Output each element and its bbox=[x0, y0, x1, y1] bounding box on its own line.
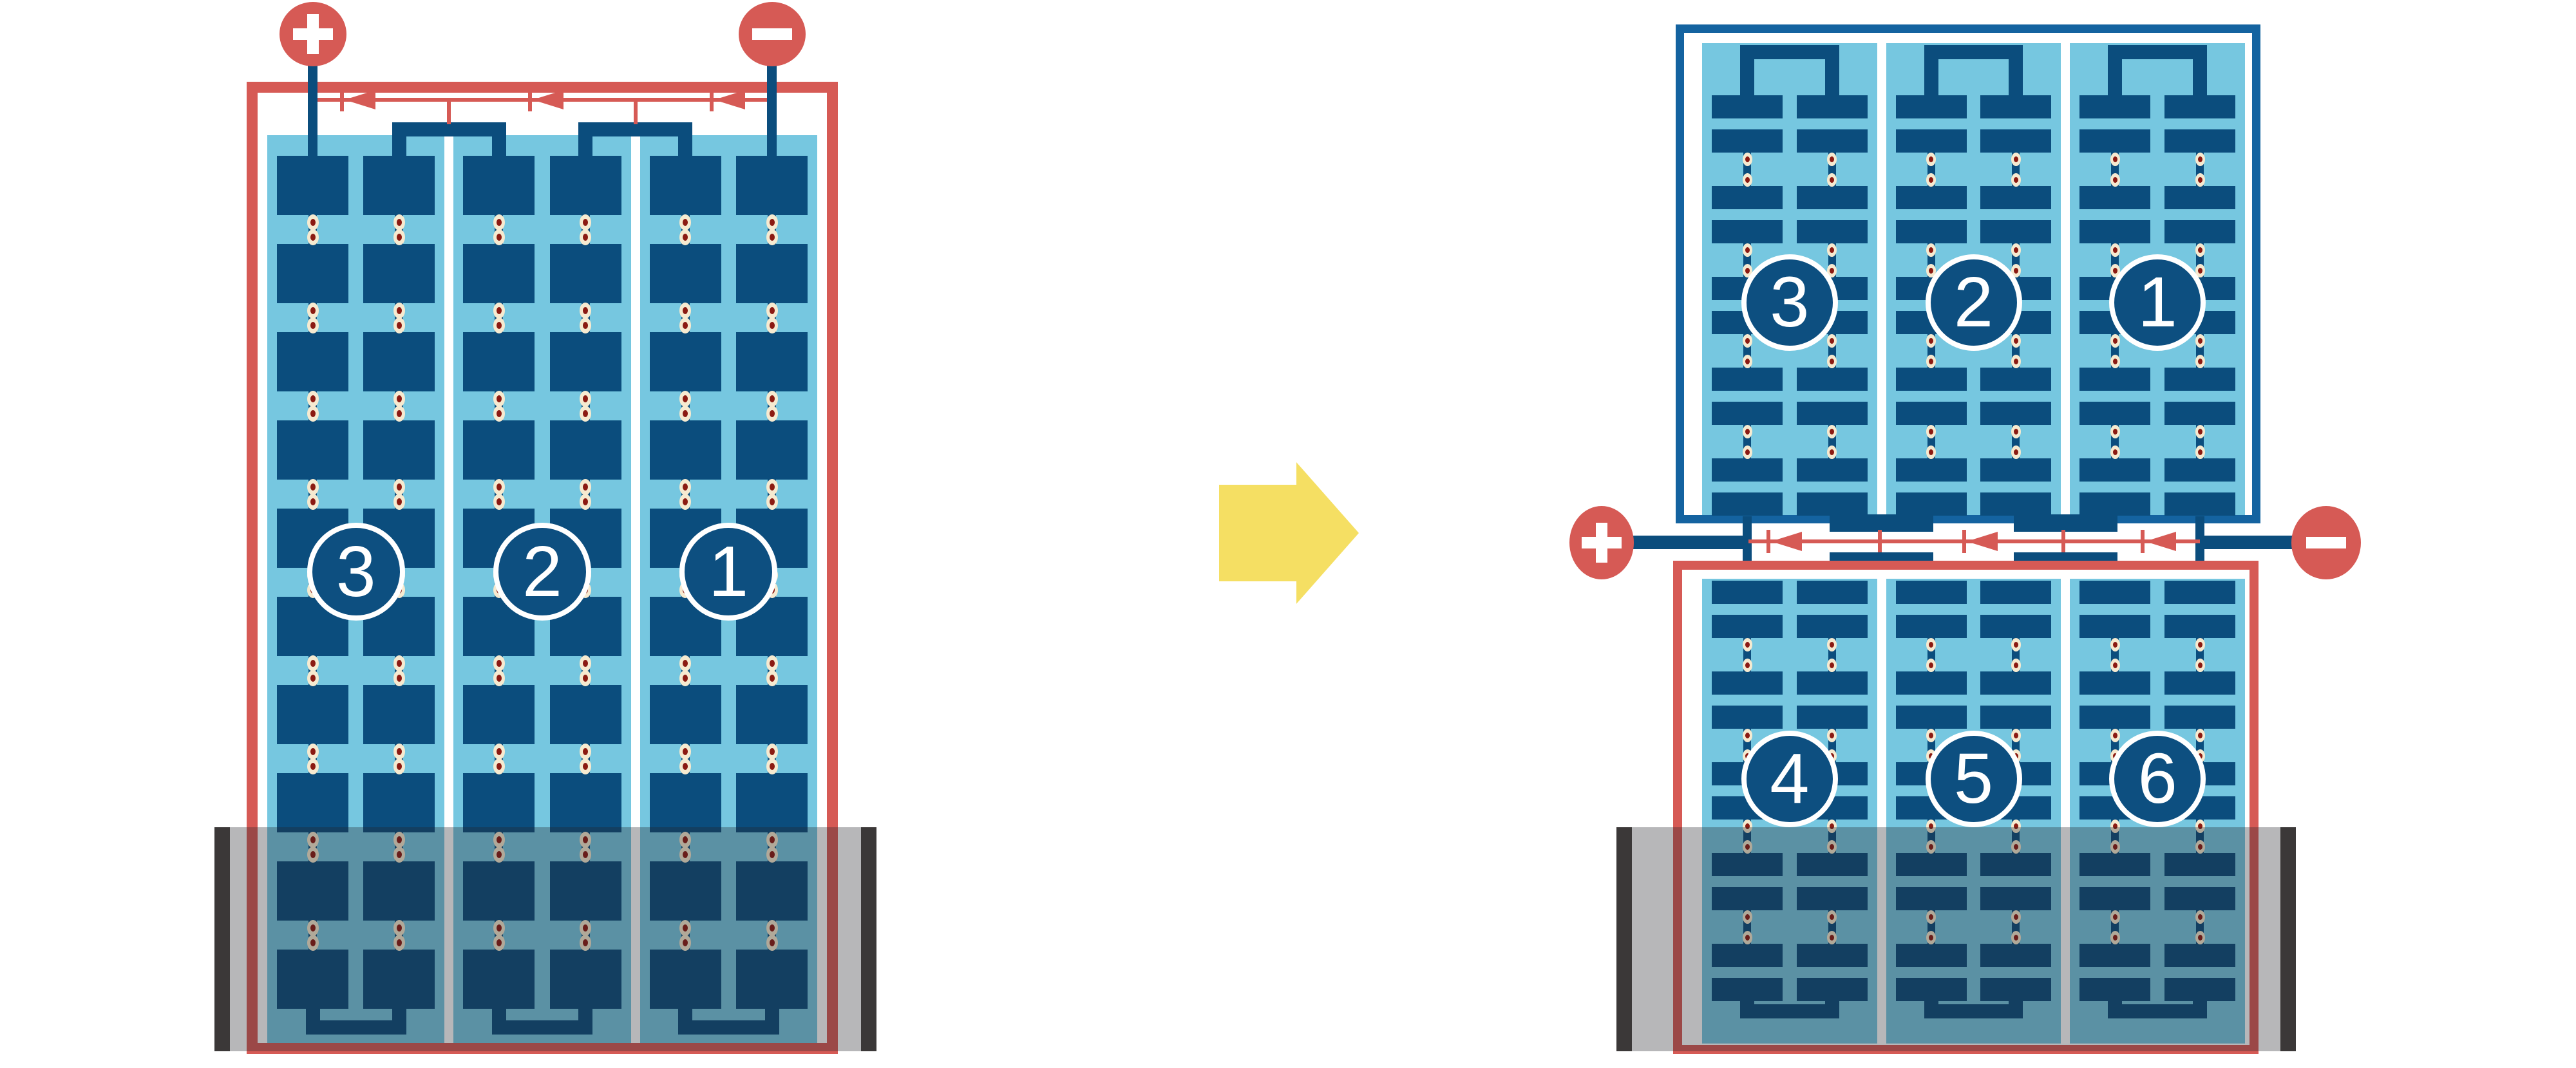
solder-dot-icon bbox=[393, 303, 405, 319]
solder-dot-core bbox=[770, 395, 775, 402]
string-u-turn-leg bbox=[2009, 59, 2023, 97]
solder-dot-core bbox=[2113, 359, 2117, 364]
cell-connector-ribbon bbox=[681, 917, 690, 953]
solder-dot-core bbox=[1929, 268, 1933, 274]
solder-dot-core bbox=[2198, 449, 2202, 455]
solder-dot-icon bbox=[2011, 425, 2021, 438]
solder-dot-icon bbox=[493, 920, 505, 936]
cell-connector-ribbon bbox=[2111, 634, 2119, 675]
solder-dot-icon bbox=[2195, 820, 2205, 833]
solder-dot-core bbox=[1830, 359, 1834, 364]
cell-connector-ribbon bbox=[681, 211, 690, 248]
pv-cell bbox=[2079, 492, 2150, 516]
pv-cell bbox=[1797, 853, 1868, 876]
cell-connector-ribbon bbox=[582, 476, 590, 512]
diode-arrow-icon bbox=[1771, 532, 1802, 551]
solder-dot-core bbox=[397, 675, 402, 682]
pv-cell bbox=[1896, 853, 1967, 876]
solder-dot-core bbox=[310, 675, 316, 682]
cell-connector-ribbon bbox=[681, 476, 690, 512]
string-number-badge: 4 bbox=[1741, 731, 1838, 827]
solder-dot-icon bbox=[1827, 910, 1837, 924]
solder-dot-core bbox=[1830, 733, 1834, 738]
solder-dot-icon bbox=[580, 567, 591, 583]
middle-junction-bus bbox=[0, 0, 2576, 1068]
solder-dot-icon bbox=[1743, 638, 1752, 651]
pv-cell bbox=[1712, 368, 1783, 391]
pv-cell bbox=[1980, 581, 2051, 604]
string-number-label: 4 bbox=[1770, 744, 1809, 814]
solder-dot-core bbox=[497, 748, 502, 755]
solder-dot-core bbox=[683, 322, 688, 329]
cell-connector-ribbon bbox=[2012, 421, 2020, 462]
solder-dot-icon bbox=[679, 920, 691, 936]
pv-cell bbox=[2164, 581, 2235, 604]
string-u-turn-bar bbox=[2108, 45, 2207, 59]
pv-cell bbox=[2164, 129, 2235, 153]
pv-cell bbox=[650, 244, 721, 303]
pv-cell bbox=[1712, 581, 1783, 604]
string-bridge-leg bbox=[492, 136, 506, 162]
solder-dot-icon bbox=[2195, 445, 2205, 459]
pv-cell bbox=[550, 509, 621, 568]
cell-connector-ribbon bbox=[2111, 421, 2119, 462]
string-separator bbox=[631, 135, 640, 1043]
cell-connector-ribbon bbox=[768, 652, 776, 689]
solder-dot-core bbox=[583, 763, 588, 770]
solder-dot-core bbox=[1830, 753, 1834, 759]
cell-connector-ribbon bbox=[2196, 816, 2204, 857]
cell-connector-ribbon bbox=[308, 740, 317, 777]
string-number-badge: 3 bbox=[1741, 254, 1838, 351]
solder-dot-icon bbox=[493, 655, 505, 671]
cell-connector-ribbon bbox=[681, 299, 690, 336]
string-u-turn-leg bbox=[678, 1009, 692, 1035]
solder-dot-core bbox=[1830, 247, 1834, 253]
pv-cell bbox=[736, 420, 808, 480]
pv-cell bbox=[463, 332, 535, 391]
solder-dot-core bbox=[683, 675, 688, 682]
solder-dot-core bbox=[497, 675, 502, 682]
solder-dot-icon bbox=[2110, 334, 2120, 348]
shade-post-icon bbox=[1616, 827, 1632, 1051]
solder-dot-core bbox=[583, 307, 588, 314]
solder-dot-icon bbox=[1743, 153, 1752, 166]
minus-icon bbox=[2291, 506, 2361, 579]
solder-dot-core bbox=[2113, 156, 2117, 162]
pv-cell bbox=[277, 861, 348, 921]
pv-cell bbox=[736, 332, 808, 391]
cell-connector-ribbon bbox=[2196, 906, 2204, 948]
pv-cell bbox=[2079, 762, 2150, 785]
string-u-turn-bar bbox=[678, 1020, 779, 1035]
pv-cell bbox=[463, 773, 535, 832]
cell-connector-ribbon bbox=[2012, 239, 2020, 281]
solder-dot-icon bbox=[1743, 264, 1752, 277]
cell-connector-ribbon bbox=[582, 917, 590, 953]
solder-dot-icon bbox=[2011, 153, 2021, 166]
solder-dot-core bbox=[1830, 156, 1834, 162]
string-u-turn-leg bbox=[1825, 59, 1839, 97]
pv-cell bbox=[550, 156, 621, 215]
solder-dot-core bbox=[583, 572, 588, 579]
solder-dot-icon bbox=[580, 670, 591, 686]
solder-dot-core bbox=[2198, 642, 2202, 648]
pv-cell bbox=[1980, 615, 2051, 638]
solder-dot-icon bbox=[1926, 173, 1936, 187]
solder-dot-icon bbox=[493, 847, 505, 863]
solder-dot-icon bbox=[1743, 840, 1752, 854]
solder-dot-core bbox=[2113, 935, 2117, 941]
solder-dot-icon bbox=[580, 479, 591, 495]
solder-dot-core bbox=[2014, 247, 2018, 253]
glyph-bar-h bbox=[2306, 537, 2346, 548]
pv-cell bbox=[1896, 492, 1967, 516]
pv-cell bbox=[650, 773, 721, 832]
pv-cell bbox=[736, 773, 808, 832]
pv-cell bbox=[2164, 402, 2235, 425]
solder-dot-core bbox=[310, 234, 316, 241]
solder-dot-core bbox=[683, 572, 688, 579]
cell-connector-ribbon bbox=[681, 652, 690, 689]
solder-dot-icon bbox=[679, 567, 691, 583]
pv-cell bbox=[1980, 762, 2051, 785]
solder-dot-core bbox=[497, 586, 502, 594]
pv-cell bbox=[1797, 129, 1868, 153]
solder-dot-icon bbox=[493, 744, 505, 760]
solder-dot-icon bbox=[580, 317, 591, 333]
string-bridge-leg bbox=[578, 136, 592, 162]
solder-dot-core bbox=[497, 939, 502, 946]
pv-cell bbox=[1896, 277, 1967, 300]
pv-cell bbox=[736, 861, 808, 921]
cell-connector-ribbon bbox=[582, 740, 590, 777]
solder-dot-core bbox=[1929, 359, 1933, 364]
solder-dot-icon bbox=[307, 567, 319, 583]
solder-dot-icon bbox=[307, 832, 319, 848]
string-u-turn-leg bbox=[492, 1009, 506, 1035]
solder-dot-icon bbox=[2195, 659, 2205, 672]
cell-connector-ribbon bbox=[395, 476, 403, 512]
solder-dot-core bbox=[2014, 662, 2018, 668]
string-number-label: 3 bbox=[336, 536, 376, 608]
pv-cell bbox=[2079, 796, 2150, 820]
pv-cell bbox=[277, 156, 348, 215]
pv-cell bbox=[1712, 458, 1783, 482]
solder-dot-core bbox=[1929, 642, 1933, 648]
solder-dot-core bbox=[397, 483, 402, 491]
solder-dot-core bbox=[1745, 642, 1750, 648]
pv-cell bbox=[2079, 581, 2150, 604]
cell-connector-ribbon bbox=[2196, 149, 2204, 190]
solder-dot-core bbox=[1745, 177, 1750, 183]
pv-cell bbox=[2164, 95, 2235, 118]
cell-connector-ribbon bbox=[2111, 725, 2119, 766]
solder-dot-icon bbox=[493, 214, 505, 230]
pv-cell bbox=[2079, 277, 2150, 300]
solder-dot-icon bbox=[1827, 931, 1837, 944]
string-u-turn-leg bbox=[2108, 59, 2122, 97]
shade-region bbox=[1616, 827, 2296, 1051]
solder-dot-core bbox=[1830, 823, 1834, 829]
pv-cell bbox=[463, 509, 535, 568]
solder-dot-core bbox=[397, 939, 402, 946]
cell-connector-ribbon bbox=[2111, 239, 2119, 281]
solder-dot-icon bbox=[393, 479, 405, 495]
diode-tick bbox=[340, 88, 344, 111]
cell-connector-ribbon bbox=[395, 388, 403, 424]
pv-cell bbox=[2164, 186, 2235, 209]
solder-dot-core bbox=[583, 851, 588, 858]
cell-connector-ribbon bbox=[308, 917, 317, 953]
pv-cell bbox=[650, 332, 721, 391]
solder-dot-core bbox=[1745, 844, 1750, 850]
transform-arrow bbox=[0, 0, 2576, 1068]
string-u-turn-leg bbox=[392, 1009, 406, 1035]
pv-cell bbox=[1797, 220, 1868, 243]
solder-dot-icon bbox=[766, 582, 778, 598]
pv-cell bbox=[1712, 492, 1783, 516]
solder-dot-icon bbox=[1926, 355, 1936, 368]
solder-dot-icon bbox=[1827, 445, 1837, 459]
solder-dot-icon bbox=[766, 229, 778, 245]
solder-dot-icon bbox=[679, 670, 691, 686]
cell-connector-ribbon bbox=[1828, 330, 1836, 371]
solder-dot-core bbox=[2113, 247, 2117, 253]
solder-dot-core bbox=[683, 498, 688, 505]
solder-dot-core bbox=[310, 763, 316, 770]
pv-cell bbox=[463, 597, 535, 656]
pv-cell bbox=[736, 685, 808, 744]
solder-dot-icon bbox=[766, 303, 778, 319]
pv-cell bbox=[550, 597, 621, 656]
solder-dot-core bbox=[2014, 823, 2018, 829]
pv-cell bbox=[1980, 186, 2051, 209]
solder-dot-icon bbox=[2195, 729, 2205, 742]
solder-dot-core bbox=[497, 395, 502, 402]
solder-dot-icon bbox=[2110, 729, 2120, 742]
string-u-turn-leg bbox=[306, 1009, 320, 1035]
solder-dot-icon bbox=[493, 406, 505, 422]
bus-tick bbox=[1878, 530, 1882, 553]
solder-dot-core bbox=[497, 572, 502, 579]
pv-cell bbox=[1797, 762, 1868, 785]
solder-dot-icon bbox=[766, 920, 778, 936]
solder-dot-core bbox=[2014, 642, 2018, 648]
cell-connector-ribbon bbox=[2196, 421, 2204, 462]
solder-dot-icon bbox=[1827, 243, 1837, 257]
pv-cell bbox=[1797, 887, 1868, 910]
solder-dot-icon bbox=[393, 391, 405, 407]
pv-cell bbox=[2164, 796, 2235, 820]
solder-dot-core bbox=[770, 836, 775, 843]
cell-connector-ribbon bbox=[2196, 634, 2204, 675]
solder-dot-icon bbox=[766, 479, 778, 495]
pv-cell bbox=[1896, 458, 1967, 482]
solder-dot-icon bbox=[493, 391, 505, 407]
pv-cell bbox=[277, 773, 348, 832]
solder-dot-icon bbox=[580, 494, 591, 510]
solder-dot-core bbox=[1929, 338, 1933, 344]
pv-cell bbox=[1896, 581, 1967, 604]
pv-cell bbox=[1712, 95, 1783, 118]
solder-dot-icon bbox=[307, 494, 319, 510]
pv-cell bbox=[277, 244, 348, 303]
solder-dot-icon bbox=[1926, 840, 1936, 854]
solder-dot-icon bbox=[493, 567, 505, 583]
cell-connector-ribbon bbox=[495, 917, 503, 953]
string-number-label: 3 bbox=[1770, 267, 1809, 338]
plus-icon bbox=[1569, 506, 1634, 579]
solder-dot-core bbox=[1745, 156, 1750, 162]
solder-dot-core bbox=[1929, 935, 1933, 941]
junction-end-bar bbox=[2195, 516, 2204, 561]
cell-connector-ribbon bbox=[681, 829, 690, 865]
pv-cell bbox=[1712, 762, 1783, 785]
solder-dot-core bbox=[770, 219, 775, 226]
pv-cell bbox=[1712, 796, 1783, 820]
solder-dot-core bbox=[310, 572, 316, 579]
solder-dot-icon bbox=[307, 655, 319, 671]
pv-cell bbox=[1896, 887, 1967, 910]
string-u-turn-leg bbox=[2193, 59, 2207, 97]
solder-dot-icon bbox=[679, 406, 691, 422]
solder-dot-core bbox=[683, 660, 688, 667]
pv-cell bbox=[2164, 458, 2235, 482]
pv-cell bbox=[2164, 277, 2235, 300]
pv-cell bbox=[363, 509, 435, 568]
solder-dot-icon bbox=[580, 214, 591, 230]
string-number-label: 2 bbox=[522, 536, 562, 608]
terminal-bar bbox=[2204, 536, 2293, 549]
solder-dot-icon bbox=[307, 317, 319, 333]
solder-dot-core bbox=[583, 410, 588, 417]
solder-dot-core bbox=[1929, 449, 1933, 455]
solder-dot-icon bbox=[493, 317, 505, 333]
cell-connector-ribbon bbox=[768, 476, 776, 512]
cell-connector-ribbon bbox=[308, 476, 317, 512]
solder-dot-icon bbox=[2195, 153, 2205, 166]
pv-cell bbox=[650, 685, 721, 744]
solder-dot-core bbox=[310, 924, 316, 932]
string-bridge-leg bbox=[392, 136, 406, 162]
solder-dot-icon bbox=[1827, 153, 1837, 166]
solder-dot-core bbox=[1929, 844, 1933, 850]
solder-dot-icon bbox=[493, 494, 505, 510]
pv-cell bbox=[1712, 706, 1783, 729]
cell-connector-ribbon bbox=[582, 388, 590, 424]
solder-dot-core bbox=[1830, 268, 1834, 274]
solder-dot-core bbox=[583, 939, 588, 946]
solder-dot-icon bbox=[1827, 659, 1837, 672]
cell-connector-ribbon bbox=[768, 740, 776, 777]
solder-dot-core bbox=[1929, 156, 1933, 162]
pv-cell bbox=[1896, 402, 1967, 425]
pv-cell bbox=[2164, 706, 2235, 729]
solder-dot-icon bbox=[2110, 659, 2120, 672]
pv-cell bbox=[277, 332, 348, 391]
cell-connector-ribbon bbox=[308, 829, 317, 865]
cell-connector-ribbon bbox=[1743, 239, 1751, 281]
solder-dot-core bbox=[770, 748, 775, 755]
diode-tick bbox=[1962, 530, 1966, 553]
solder-dot-icon bbox=[393, 214, 405, 230]
pv-cell bbox=[1980, 887, 2051, 910]
cell-connector-ribbon bbox=[395, 917, 403, 953]
solder-dot-icon bbox=[766, 935, 778, 951]
pv-cell bbox=[463, 420, 535, 480]
glyph-bar-h bbox=[752, 28, 792, 40]
pv-cell bbox=[1980, 796, 2051, 820]
cell-connector-ribbon bbox=[1743, 906, 1751, 948]
pv-cell bbox=[1896, 615, 1967, 638]
pv-cell bbox=[363, 597, 435, 656]
solder-dot-core bbox=[2198, 733, 2202, 738]
diode-arrow-icon bbox=[533, 90, 563, 109]
solder-dot-icon bbox=[2011, 931, 2021, 944]
solder-dot-icon bbox=[2195, 334, 2205, 348]
cell-connector-ribbon bbox=[495, 299, 503, 336]
solder-dot-core bbox=[2014, 268, 2018, 274]
solder-dot-core bbox=[497, 763, 502, 770]
pv-cell bbox=[1797, 186, 1868, 209]
solder-dot-core bbox=[683, 483, 688, 491]
solder-dot-icon bbox=[2110, 173, 2120, 187]
solder-dot-icon bbox=[1926, 425, 1936, 438]
cell-connector-ribbon bbox=[495, 829, 503, 865]
solder-dot-icon bbox=[1926, 153, 1936, 166]
solder-dot-icon bbox=[2011, 729, 2021, 742]
shade-post-icon bbox=[214, 827, 230, 1051]
pv-cell bbox=[1980, 706, 2051, 729]
pv-cell bbox=[650, 950, 721, 1009]
solder-dot-icon bbox=[580, 758, 591, 774]
cell-connector-ribbon bbox=[308, 211, 317, 248]
solder-dot-core bbox=[1929, 429, 1933, 435]
string-u-turn-bar bbox=[1740, 1004, 1839, 1018]
cell-connector-ribbon bbox=[395, 211, 403, 248]
solder-dot-core bbox=[497, 851, 502, 858]
solder-dot-core bbox=[397, 660, 402, 667]
solder-dot-icon bbox=[1926, 749, 1936, 763]
solder-dot-core bbox=[2113, 642, 2117, 648]
cell-connector-ribbon bbox=[495, 652, 503, 689]
solder-dot-core bbox=[397, 748, 402, 755]
pv-cell bbox=[2164, 492, 2235, 516]
string-u-turn-leg bbox=[1825, 997, 1839, 1018]
pv-cell bbox=[1896, 129, 1967, 153]
string-separator bbox=[2061, 579, 2070, 1044]
string-separator bbox=[1877, 579, 1886, 1044]
solder-dot-icon bbox=[393, 758, 405, 774]
negative-terminal bbox=[2291, 506, 2361, 579]
solder-dot-icon bbox=[2110, 153, 2120, 166]
solder-dot-core bbox=[2198, 823, 2202, 829]
solder-dot-core bbox=[1745, 662, 1750, 668]
solder-dot-icon bbox=[1743, 931, 1752, 944]
solder-dot-core bbox=[683, 924, 688, 932]
solder-dot-icon bbox=[766, 670, 778, 686]
solder-dot-core bbox=[2014, 733, 2018, 738]
solder-dot-core bbox=[583, 924, 588, 932]
pv-cell bbox=[1712, 402, 1783, 425]
solder-dot-core bbox=[310, 483, 316, 491]
solder-dot-core bbox=[2113, 177, 2117, 183]
solder-dot-core bbox=[683, 395, 688, 402]
solder-dot-icon bbox=[766, 744, 778, 760]
solder-dot-core bbox=[1745, 753, 1750, 759]
cell-connector-ribbon bbox=[395, 299, 403, 336]
